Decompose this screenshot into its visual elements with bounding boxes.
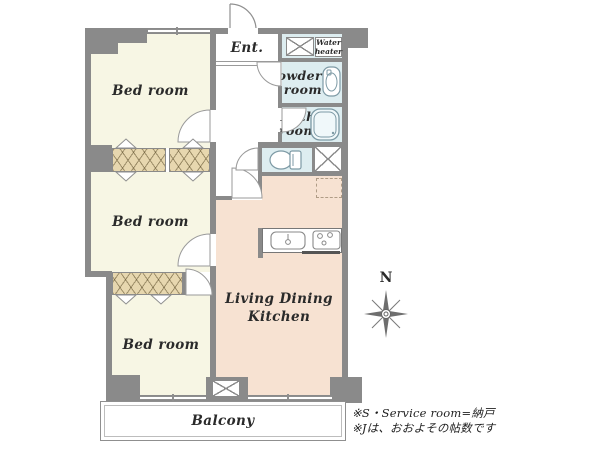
closet-2 bbox=[169, 148, 210, 172]
entry-door-icon bbox=[230, 4, 256, 28]
water-heater-label: Water heater bbox=[316, 38, 341, 56]
kitchen-grill-strip bbox=[302, 251, 340, 254]
pillar-bottom-left bbox=[106, 375, 140, 403]
room-label-ldk: Living Dining Kitchen bbox=[216, 286, 342, 330]
wall-right bbox=[342, 28, 348, 401]
wall-toilet-ldk bbox=[258, 172, 348, 176]
water-heater-unit-icon bbox=[286, 37, 314, 56]
window-bed1-top bbox=[148, 29, 210, 33]
bedroom3-door-icon bbox=[186, 269, 212, 295]
ldk-dotted-area bbox=[316, 178, 342, 198]
pillar-bottom-right bbox=[330, 377, 362, 403]
compass-north-label: N bbox=[374, 270, 398, 286]
wall-powder-bath bbox=[278, 103, 346, 107]
room-bath: Bath room bbox=[282, 107, 342, 142]
wall-toilet-left bbox=[258, 146, 262, 198]
room-toilet bbox=[262, 148, 312, 172]
compass-rose-icon bbox=[364, 290, 408, 338]
kitchen-counter bbox=[262, 228, 342, 253]
room-label-powder: Powder room bbox=[282, 66, 322, 100]
window-tick bbox=[176, 27, 178, 35]
floor-plan: Bed room Bed room Bed room Ent. Powder r… bbox=[0, 0, 600, 450]
room-powder: Powder room bbox=[282, 62, 342, 103]
room-label: Bed room bbox=[112, 213, 189, 231]
wall-hall-right-1 bbox=[278, 28, 282, 62]
wall-closet-filler bbox=[91, 145, 112, 172]
closet-1 bbox=[112, 148, 166, 172]
water-heater-label-box: Water heater bbox=[315, 37, 342, 57]
room-entry: Ent. bbox=[216, 34, 278, 62]
pipe-shaft-bottom-icon bbox=[212, 380, 240, 397]
wall-hall-ldk-stub bbox=[216, 196, 232, 200]
balcony-label: Balcony bbox=[104, 405, 342, 437]
window-ldk-balcony bbox=[246, 396, 332, 400]
note-line-2: ※Jは、おおよその帖数です bbox=[352, 421, 597, 436]
pipe-shaft-icon bbox=[314, 146, 342, 172]
room-label: Bed room bbox=[123, 336, 200, 354]
pillar-top-left-b bbox=[85, 28, 118, 54]
wall-bed3-door-stub bbox=[183, 272, 187, 295]
room-bedroom-2: Bed room bbox=[91, 172, 210, 272]
entry-step bbox=[216, 61, 278, 66]
toilet-door-icon bbox=[236, 148, 258, 170]
wall-mid-2 bbox=[210, 142, 216, 234]
closet-3 bbox=[112, 272, 183, 295]
wall-mid-1 bbox=[210, 28, 216, 110]
entry-door-opening bbox=[228, 28, 258, 34]
room-label: Bed room bbox=[112, 82, 189, 100]
room-label: Ent. bbox=[231, 39, 264, 57]
balcony: Balcony bbox=[100, 401, 346, 441]
wall-waterheater-powder bbox=[278, 58, 346, 62]
room-label-bath: Bath room bbox=[284, 109, 312, 139]
plan-notes: ※S・Service room=納戸 ※Jは、おおよその帖数です bbox=[352, 406, 597, 436]
note-line-1: ※S・Service room=納戸 bbox=[352, 406, 597, 421]
